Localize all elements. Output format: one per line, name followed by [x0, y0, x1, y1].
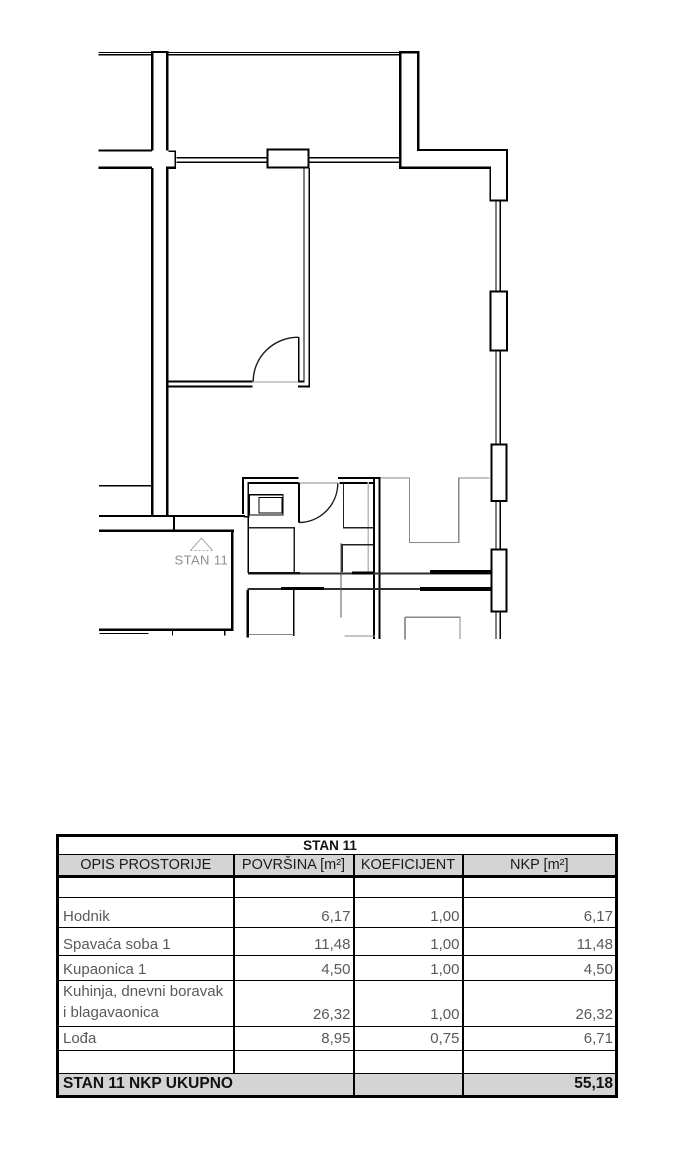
svg-text:STAN 11: STAN 11 [175, 553, 229, 568]
